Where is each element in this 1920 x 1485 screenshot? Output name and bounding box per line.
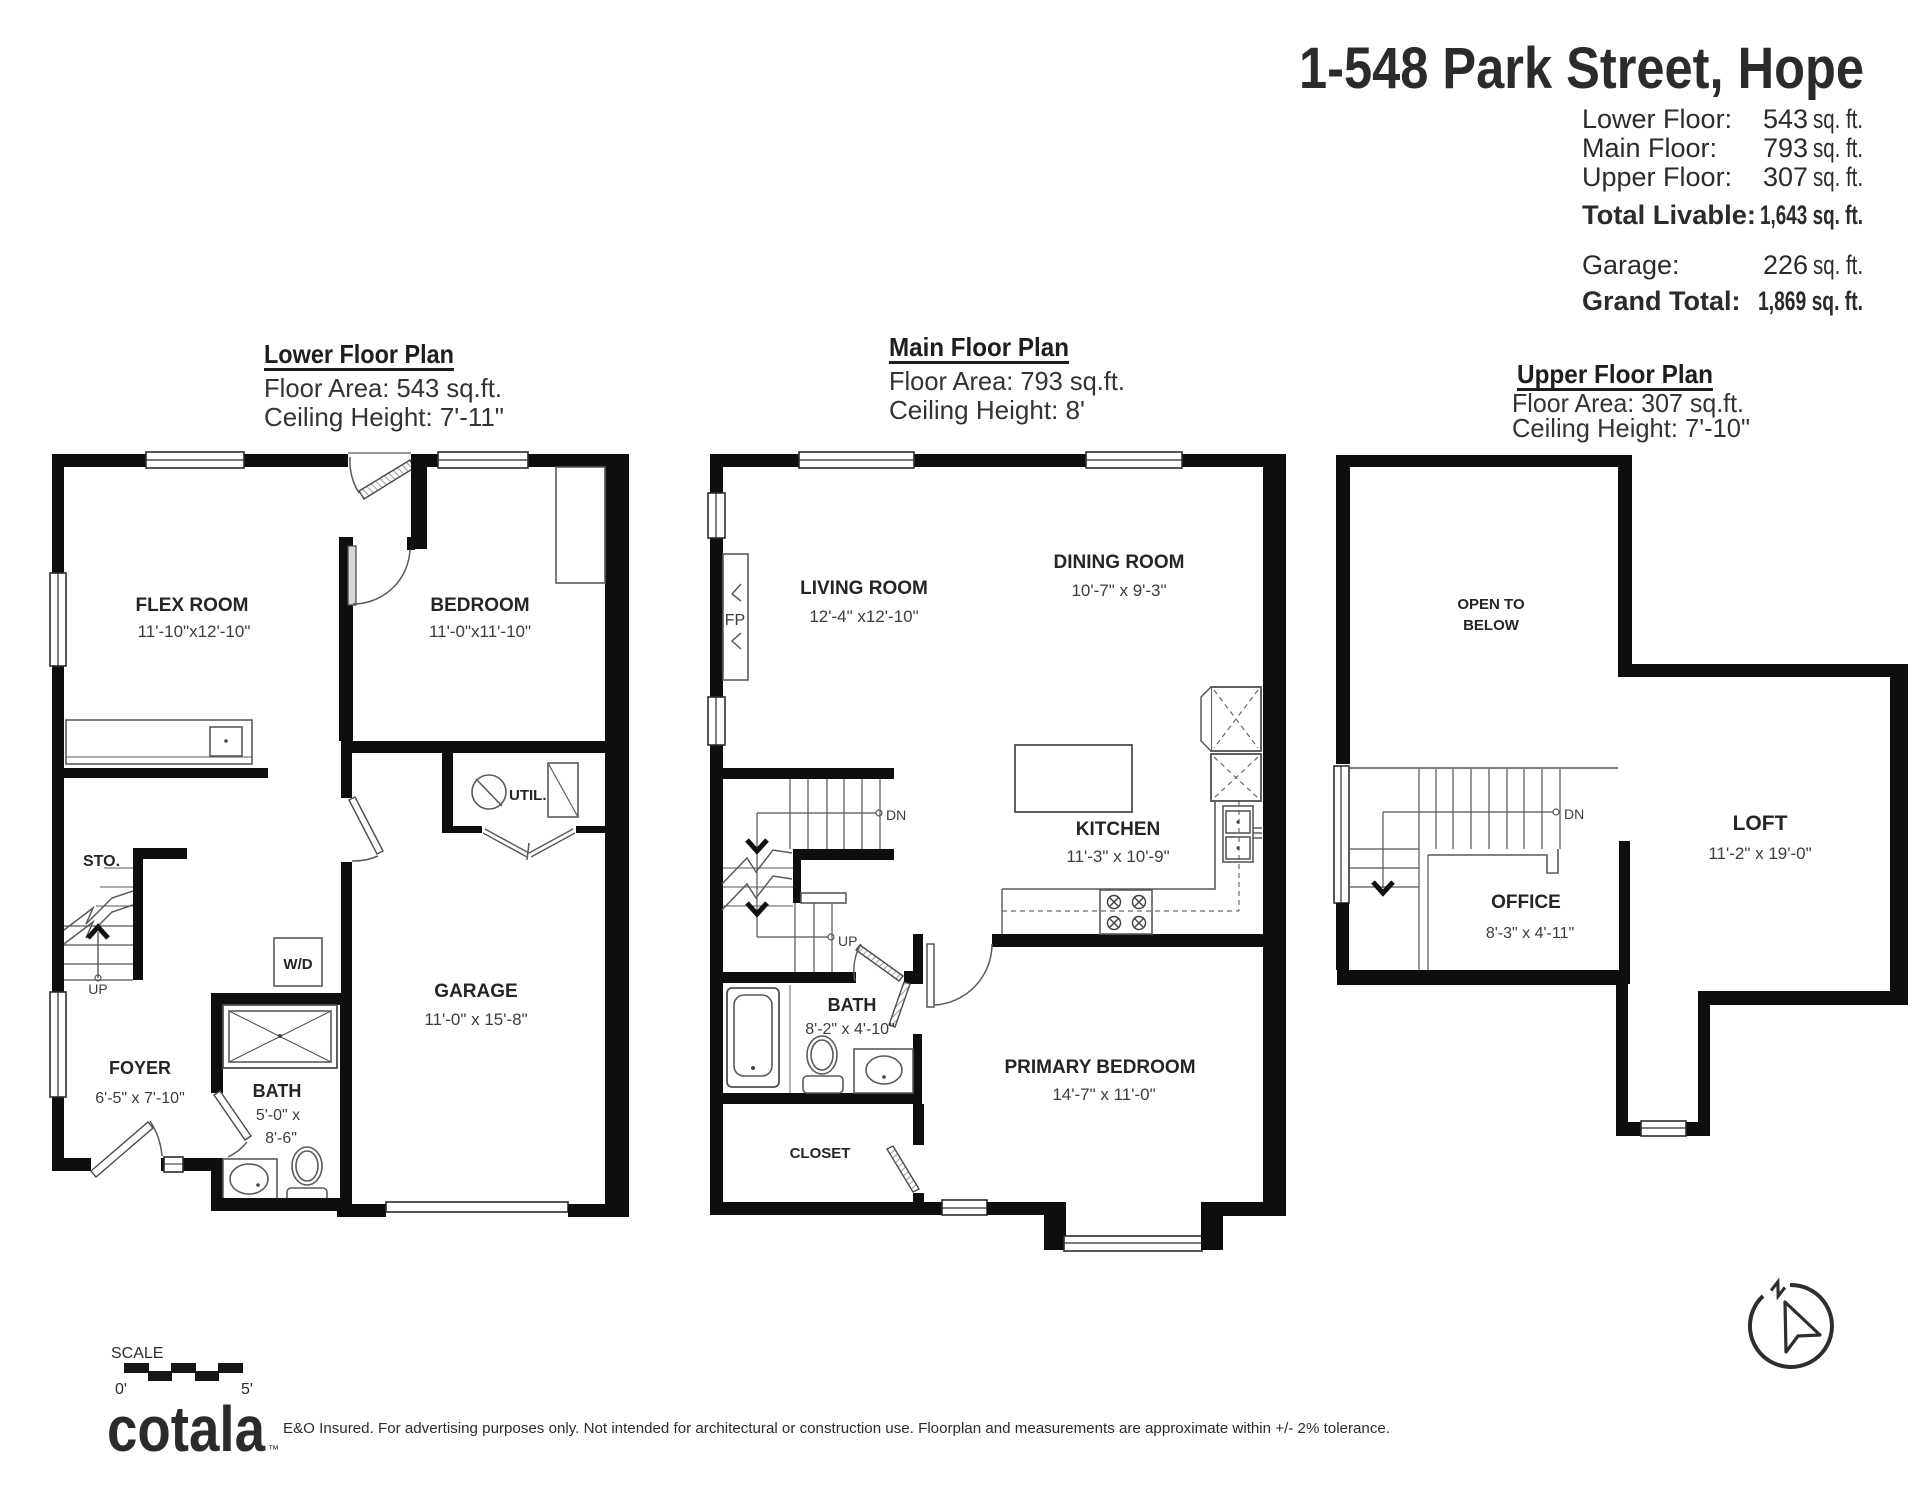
svg-text:UP: UP [88, 981, 107, 997]
svg-text:Total Livable:: Total Livable: [1582, 200, 1756, 230]
svg-text:11'-0" x 15'-8": 11'-0" x 15'-8" [424, 1010, 527, 1029]
svg-text:8'-3" x 4'-11": 8'-3" x 4'-11" [1486, 925, 1574, 942]
svg-text:Garage:: Garage: [1582, 250, 1680, 280]
svg-text:FP: FP [725, 612, 745, 629]
svg-text:sq. ft.: sq. ft. [1813, 250, 1863, 280]
svg-text:UP: UP [838, 933, 857, 949]
svg-text:Grand Total:: Grand Total: [1582, 286, 1741, 316]
svg-text:Floor Area: 793 sq.ft.: Floor Area: 793 sq.ft. [889, 366, 1125, 396]
svg-text:sq. ft.: sq. ft. [1813, 104, 1863, 134]
svg-text:Ceiling Height: 7'-10": Ceiling Height: 7'-10" [1512, 413, 1750, 443]
svg-text:10'-7" x 9'-3": 10'-7" x 9'-3" [1071, 581, 1166, 600]
svg-text:Upper Floor:: Upper Floor: [1582, 162, 1732, 192]
svg-text:BATH: BATH [828, 995, 877, 1015]
svg-text:1-548 Park Street, Hope: 1-548 Park Street, Hope [1299, 36, 1864, 101]
svg-text:12'-4" x12'-10": 12'-4" x12'-10" [809, 607, 918, 626]
svg-text:CLOSET: CLOSET [790, 1145, 851, 1162]
svg-text:Ceiling Height: 8': Ceiling Height: 8' [889, 395, 1085, 425]
svg-text:307: 307 [1763, 162, 1808, 192]
svg-text:FLEX ROOM: FLEX ROOM [136, 595, 249, 616]
svg-text:SCALE: SCALE [111, 1345, 163, 1362]
svg-text:6'-5" x 7'-10": 6'-5" x 7'-10" [95, 1090, 185, 1107]
svg-text:sq. ft.: sq. ft. [1813, 162, 1863, 192]
svg-text:Main Floor:: Main Floor: [1582, 133, 1717, 163]
svg-text:11'-2" x 19'-0": 11'-2" x 19'-0" [1708, 844, 1811, 863]
svg-text:STO.: STO. [83, 853, 120, 870]
svg-text:KITCHEN: KITCHEN [1076, 819, 1160, 840]
svg-text:5'-0" x: 5'-0" x [256, 1107, 300, 1124]
svg-text:Floor Area: 543 sq.ft.: Floor Area: 543 sq.ft. [264, 373, 502, 403]
svg-text:Lower Floor:: Lower Floor: [1582, 104, 1732, 134]
svg-text:OPEN TO: OPEN TO [1457, 596, 1525, 613]
svg-text:11'-0"x11'-10": 11'-0"x11'-10" [429, 622, 531, 641]
svg-text:8'-6": 8'-6" [265, 1130, 297, 1147]
svg-text:FOYER: FOYER [109, 1058, 171, 1078]
svg-text:1,869 sq. ft.: 1,869 sq. ft. [1758, 286, 1863, 316]
svg-text:11'-10"x12'-10": 11'-10"x12'-10" [138, 622, 251, 641]
svg-text:cotala: cotala [107, 1393, 265, 1465]
svg-text:DN: DN [1564, 806, 1584, 822]
svg-text:543: 543 [1763, 104, 1808, 134]
svg-text:BEDROOM: BEDROOM [430, 595, 529, 616]
svg-text:OFFICE: OFFICE [1491, 892, 1561, 913]
svg-text:UTIL.: UTIL. [509, 787, 547, 804]
svg-text:Main Floor Plan: Main Floor Plan [889, 332, 1069, 362]
svg-text:W/D: W/D [283, 956, 312, 973]
svg-text:226: 226 [1763, 250, 1808, 280]
svg-text:14'-7" x 11'-0": 14'-7" x 11'-0" [1052, 1085, 1155, 1104]
svg-text:BATH: BATH [253, 1081, 302, 1101]
svg-text:DN: DN [886, 807, 906, 823]
svg-text:1,643 sq. ft.: 1,643 sq. ft. [1760, 200, 1863, 230]
svg-text:DINING ROOM: DINING ROOM [1054, 552, 1185, 573]
svg-text:LIVING ROOM: LIVING ROOM [800, 578, 928, 599]
svg-text:sq. ft.: sq. ft. [1813, 133, 1863, 163]
svg-text:PRIMARY BEDROOM: PRIMARY BEDROOM [1004, 1057, 1195, 1078]
svg-text:Ceiling Height: 7'-11": Ceiling Height: 7'-11" [264, 402, 504, 432]
svg-text:™: ™ [268, 1444, 279, 1456]
svg-text:GARAGE: GARAGE [434, 981, 517, 1002]
svg-text:BELOW: BELOW [1463, 617, 1520, 634]
svg-text:E&O Insured. For advertising p: E&O Insured. For advertising purposes on… [283, 1420, 1390, 1437]
svg-text:8'-2" x 4'-10": 8'-2" x 4'-10" [805, 1021, 895, 1038]
svg-text:11'-3" x 10'-9": 11'-3" x 10'-9" [1066, 847, 1169, 866]
svg-text:Lower Floor Plan: Lower Floor Plan [264, 339, 454, 369]
svg-text:793: 793 [1763, 133, 1808, 163]
svg-text:Upper Floor Plan: Upper Floor Plan [1517, 359, 1713, 389]
svg-text:LOFT: LOFT [1733, 812, 1788, 835]
